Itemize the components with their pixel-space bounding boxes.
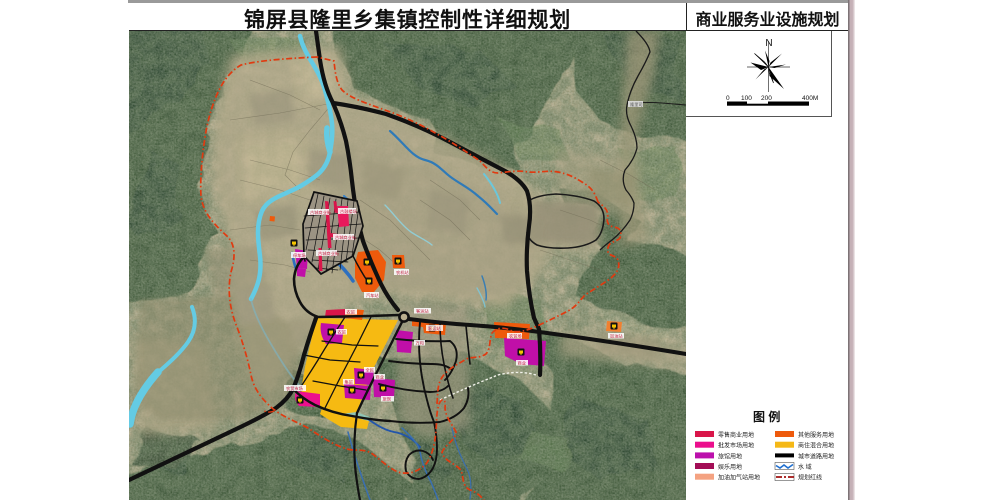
svg-text:水 域: 水 域 <box>798 463 812 471</box>
svg-text:商住混合用地: 商住混合用地 <box>798 442 834 450</box>
svg-text:停车场: 停车场 <box>293 252 306 259</box>
svg-text:客运站: 客运站 <box>428 325 441 332</box>
svg-text:规划红线: 规划红线 <box>798 474 822 482</box>
svg-text:商业: 商业 <box>376 374 384 381</box>
svg-text:娱乐用地: 娱乐用地 <box>718 463 742 471</box>
svg-text:图 例: 图 例 <box>753 409 780 424</box>
svg-text:万和: 万和 <box>416 340 424 347</box>
svg-text:200: 200 <box>761 95 772 102</box>
svg-text:N: N <box>765 38 772 49</box>
svg-text:汽车站: 汽车站 <box>366 292 379 299</box>
svg-text:零售商业用地: 零售商业用地 <box>718 431 754 439</box>
svg-text:加油站: 加油站 <box>610 333 623 340</box>
svg-text:隆里司: 隆里司 <box>630 101 643 108</box>
svg-text:全民: 全民 <box>366 367 374 374</box>
svg-text:古鼓楼场: 古鼓楼场 <box>340 208 357 215</box>
svg-text:其他服务用地: 其他服务用地 <box>798 431 834 439</box>
svg-text:旅馆: 旅馆 <box>383 396 391 403</box>
svg-text:旅馆用地: 旅馆用地 <box>718 452 742 460</box>
svg-text:集贸: 集贸 <box>345 379 353 386</box>
svg-text:商业: 商业 <box>518 360 526 367</box>
svg-text:批发市场用地: 批发市场用地 <box>718 442 754 450</box>
svg-text:古城商业街: 古城商业街 <box>318 250 339 257</box>
svg-text:古城商业街: 古城商业街 <box>335 234 356 241</box>
svg-text:农贸: 农贸 <box>347 309 355 316</box>
svg-text:400M: 400M <box>802 95 818 102</box>
svg-text:农机站: 农机站 <box>396 269 409 276</box>
svg-text:农贸: 农贸 <box>338 329 346 336</box>
svg-text:农贸场: 农贸场 <box>509 333 522 340</box>
svg-text:加油加气站用地: 加油加气站用地 <box>718 474 760 482</box>
svg-text:客运站: 客运站 <box>416 308 429 315</box>
svg-text:0: 0 <box>726 95 730 102</box>
svg-text:古城商业街: 古城商业街 <box>310 209 331 216</box>
svg-text:100: 100 <box>741 95 752 102</box>
svg-text:城市道路用地: 城市道路用地 <box>798 452 834 460</box>
svg-text:农贸市场: 农贸市场 <box>286 385 303 392</box>
